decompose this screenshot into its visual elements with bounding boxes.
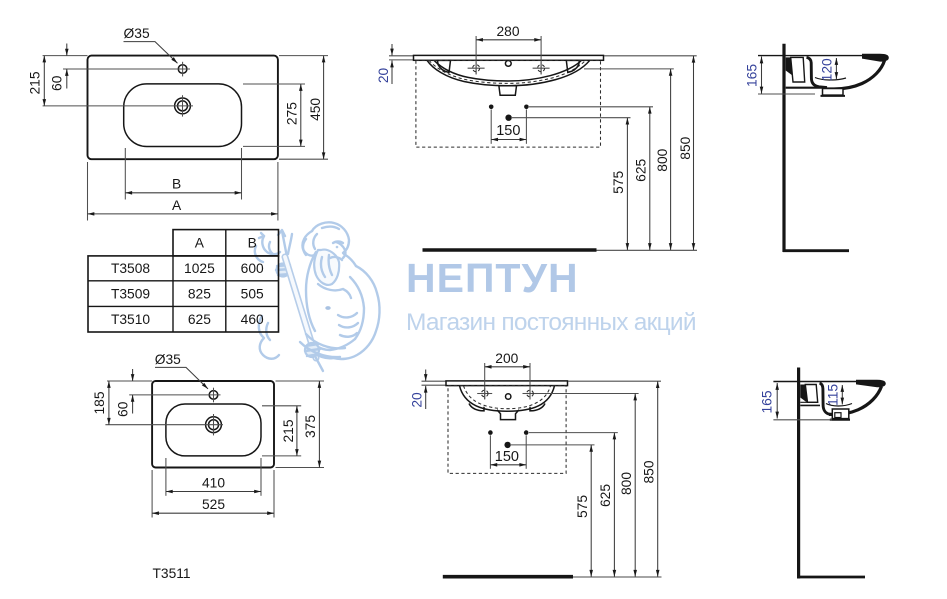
svg-text:850: 850	[642, 460, 657, 483]
svg-text:575: 575	[611, 170, 626, 193]
svg-text:20: 20	[410, 392, 425, 408]
svg-text:Магазин постоянных акций: Магазин постоянных акций	[406, 309, 696, 336]
svg-text:Ø35: Ø35	[124, 26, 150, 41]
svg-text:185: 185	[92, 391, 107, 414]
svg-text:150: 150	[495, 449, 519, 465]
svg-text:575: 575	[575, 495, 590, 518]
svg-text:T3511: T3511	[153, 566, 191, 581]
svg-text:B: B	[248, 235, 257, 250]
svg-text:T3508: T3508	[111, 261, 150, 276]
svg-text:200: 200	[495, 351, 518, 366]
svg-text:115: 115	[826, 384, 841, 406]
svg-text:600: 600	[241, 261, 264, 276]
svg-text:B: B	[172, 177, 181, 192]
svg-text:НЕПТУН: НЕПТУН	[406, 255, 579, 301]
svg-text:625: 625	[634, 158, 649, 181]
svg-text:215: 215	[28, 71, 43, 94]
svg-text:150: 150	[496, 123, 520, 139]
svg-text:525: 525	[202, 497, 225, 512]
svg-text:800: 800	[655, 148, 670, 171]
svg-text:60: 60	[49, 75, 64, 91]
svg-text:275: 275	[285, 102, 300, 125]
svg-text:215: 215	[281, 419, 296, 442]
svg-text:505: 505	[241, 286, 264, 301]
svg-text:A: A	[195, 235, 205, 250]
svg-text:460: 460	[241, 312, 264, 327]
svg-text:825: 825	[188, 286, 211, 301]
svg-text:450: 450	[308, 98, 323, 121]
svg-text:1025: 1025	[184, 261, 215, 276]
svg-text:Ø35: Ø35	[155, 352, 181, 367]
svg-text:625: 625	[188, 312, 211, 327]
svg-text:625: 625	[598, 484, 613, 507]
svg-text:800: 800	[619, 472, 634, 495]
svg-text:T3510: T3510	[111, 312, 150, 327]
svg-text:375: 375	[303, 415, 318, 438]
svg-text:120: 120	[819, 58, 834, 81]
svg-text:280: 280	[496, 24, 519, 39]
svg-text:T3509: T3509	[111, 286, 150, 301]
svg-text:A: A	[172, 198, 182, 213]
svg-text:165: 165	[759, 390, 774, 413]
svg-text:60: 60	[115, 401, 130, 417]
svg-text:850: 850	[678, 136, 693, 159]
svg-text:20: 20	[376, 68, 391, 84]
svg-text:165: 165	[745, 64, 760, 87]
svg-text:410: 410	[202, 475, 225, 490]
